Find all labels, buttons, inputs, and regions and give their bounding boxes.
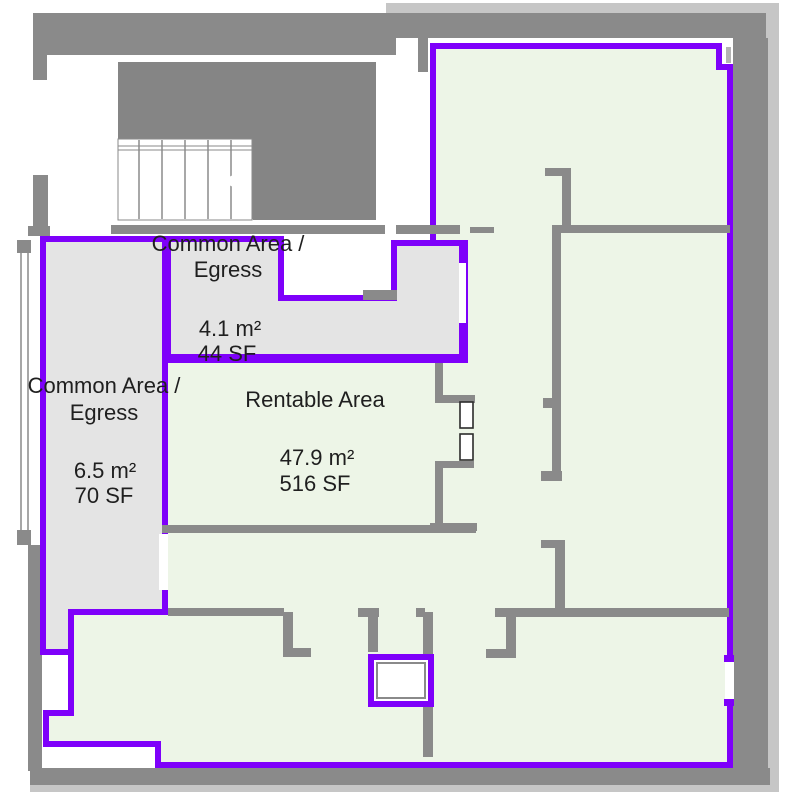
stairwell — [118, 62, 376, 220]
door-opening — [159, 534, 168, 590]
wall-segment — [33, 13, 47, 80]
wall-segment — [30, 768, 770, 785]
common-left-metric: 6.5 m² — [74, 458, 136, 483]
shaft-outline — [371, 657, 431, 704]
wall-segment — [506, 612, 516, 652]
floorplan-page: Common Area / Egress 4.1 m² 44 SF Common… — [0, 0, 786, 800]
floorplan-canvas: Common Area / Egress 4.1 m² 44 SF Common… — [0, 0, 786, 800]
common-top-metric: 4.1 m² — [199, 316, 261, 341]
wall-segment — [168, 608, 284, 616]
wall-segment — [28, 226, 50, 236]
wall-segment — [283, 648, 311, 657]
wall-segment — [363, 290, 397, 300]
wall-segment — [541, 471, 562, 481]
wall-segment — [396, 13, 766, 38]
window-cap — [17, 530, 31, 545]
rentable-name: Rentable Area — [245, 387, 385, 412]
wall-segment — [555, 540, 565, 617]
stairwell-block — [260, 139, 376, 220]
door-leaf — [460, 434, 473, 460]
wall-segment — [470, 227, 494, 233]
wall-segment — [486, 649, 516, 658]
common-area-left-region — [43, 239, 165, 652]
common-left-imperial: 70 SF — [75, 483, 134, 508]
door-leaf — [460, 402, 473, 428]
door-jamb — [724, 655, 734, 662]
wall-segment — [543, 398, 553, 408]
door-tick — [726, 47, 731, 63]
rentable-imperial: 516 SF — [280, 471, 351, 496]
wall-segment — [562, 174, 571, 227]
door-opening — [459, 263, 466, 323]
wall-segment — [386, 3, 779, 13]
wall-segment — [541, 540, 555, 548]
wall-segment — [368, 612, 378, 652]
rentable-metric: 47.9 m² — [280, 445, 355, 470]
wall-segment — [33, 13, 396, 55]
wall-segment — [552, 231, 561, 481]
door-jamb — [724, 699, 734, 706]
wall-segment — [733, 38, 768, 785]
wall-segment — [162, 525, 476, 533]
wall-segment — [396, 225, 460, 234]
shaft-box — [371, 657, 431, 704]
common-top-name-line2: Egress — [194, 257, 262, 282]
common-left-name-line2: Egress — [70, 400, 138, 425]
wall-segment — [552, 225, 730, 233]
wall-segment — [435, 461, 443, 531]
stairwell-block — [118, 62, 376, 139]
door-opening — [725, 662, 734, 699]
wall-segment — [418, 38, 428, 72]
window-cap — [17, 240, 31, 253]
common-top-imperial: 44 SF — [198, 341, 257, 366]
wall-segment — [495, 608, 729, 617]
common-left-name-line1: Common Area / — [28, 373, 182, 398]
common-top-name-line1: Common Area / — [152, 231, 306, 256]
wall-segment — [28, 545, 42, 771]
